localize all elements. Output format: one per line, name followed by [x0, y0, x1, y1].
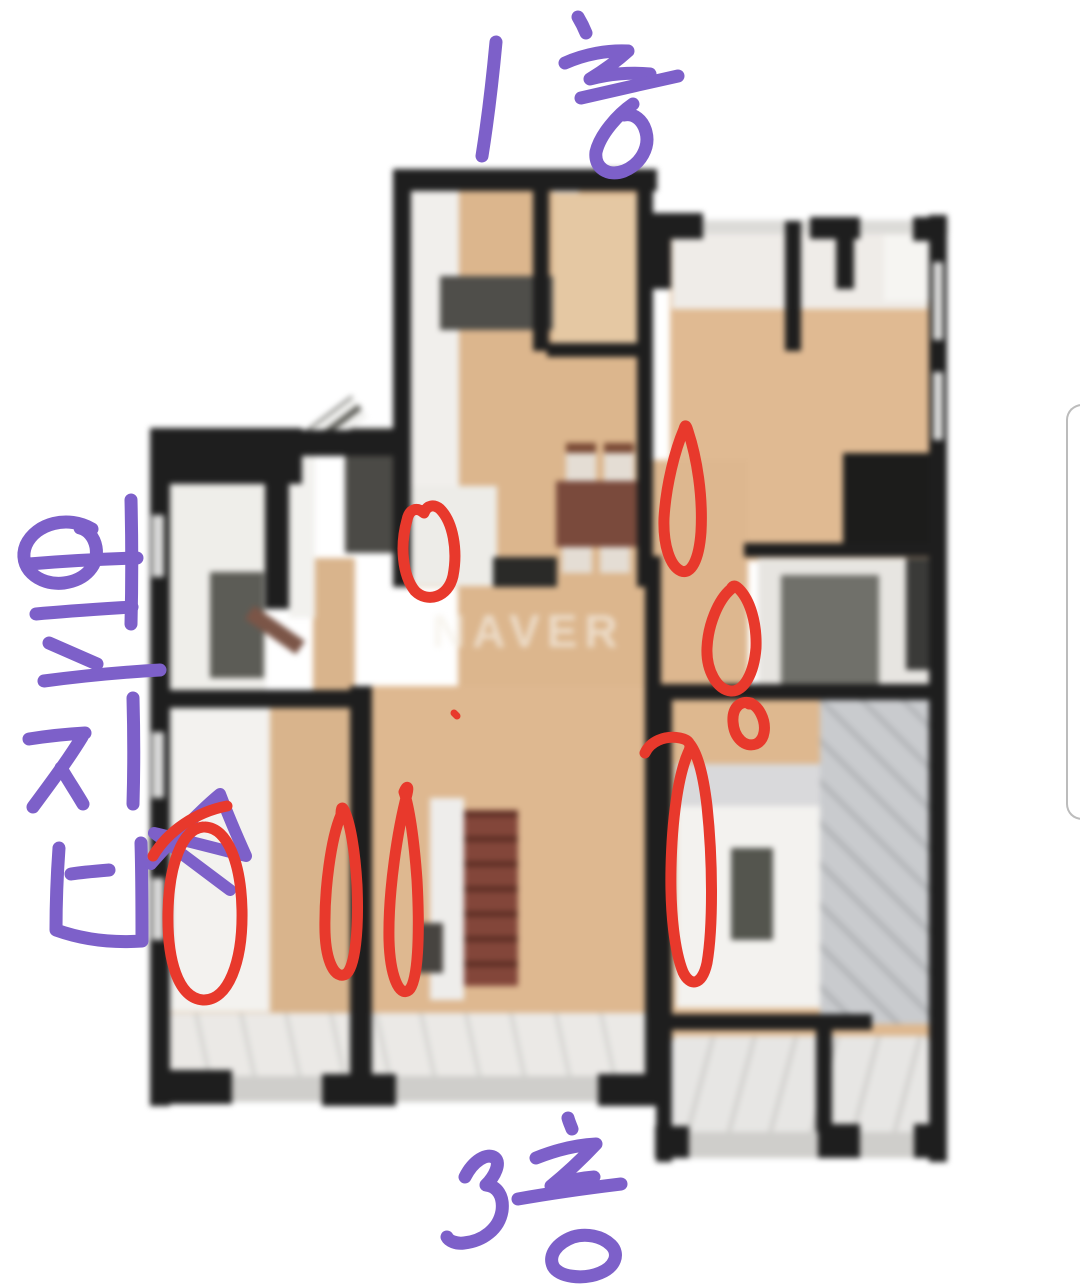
red-circle-marker	[325, 808, 358, 975]
annotation-layer	[0, 0, 1080, 1284]
red-circle-marker	[389, 787, 418, 991]
red-circle-marker	[733, 702, 765, 745]
red-dot-marker	[454, 713, 457, 716]
scroll-indicator[interactable]	[1066, 404, 1080, 820]
handwritten-label-next-door	[24, 500, 160, 942]
red-circle-marker	[645, 737, 712, 982]
handwritten-label-top-floor	[482, 17, 678, 173]
red-circle-marker	[168, 827, 242, 1000]
handwritten-label-bottom-floor	[447, 1118, 621, 1277]
red-circle-marker	[707, 586, 756, 691]
red-circle-marker	[403, 506, 455, 597]
red-circle-marker	[664, 426, 701, 572]
